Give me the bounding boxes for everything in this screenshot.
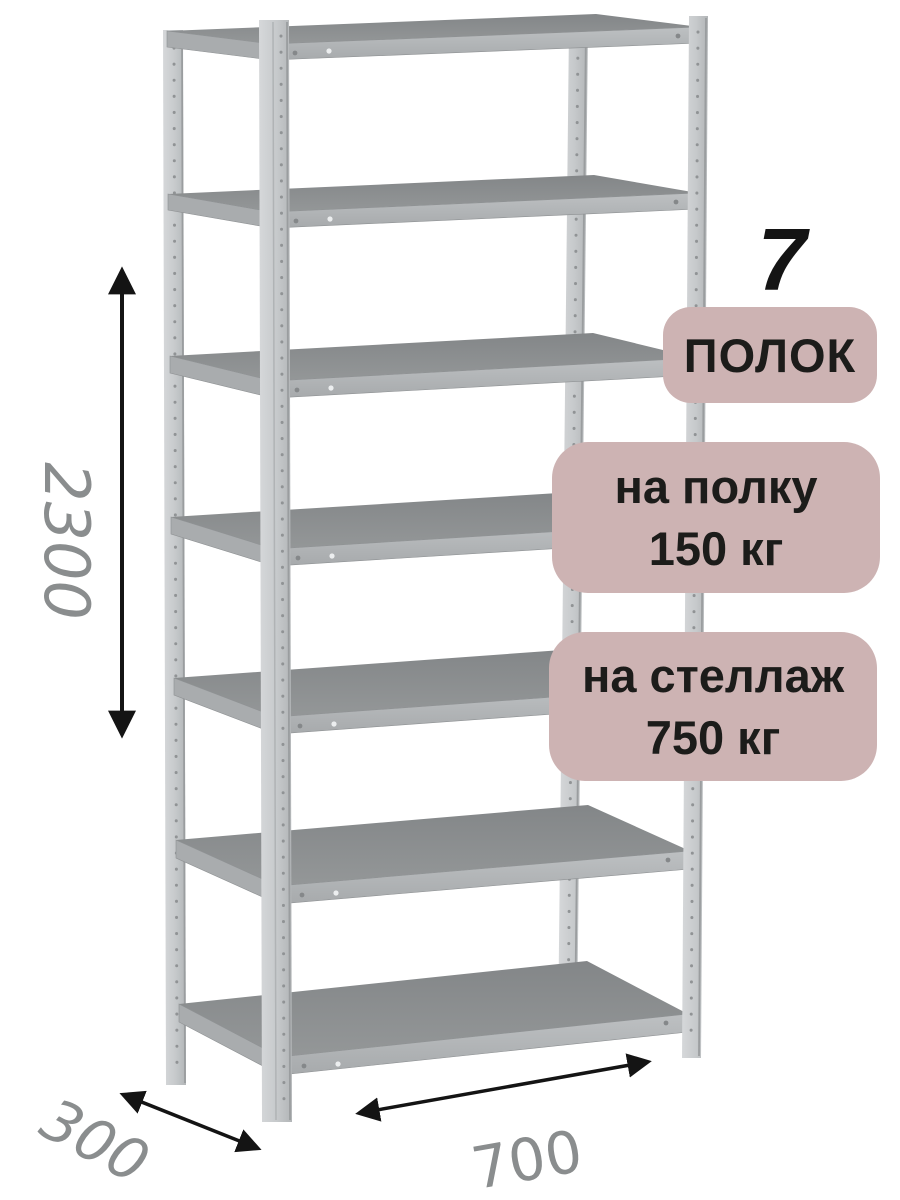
rack-shelf-6 (176, 805, 690, 904)
rack-shelf-7 (179, 961, 688, 1075)
product-image: 2300 300 700 7 ПОЛОК на полку 150 кг на … (0, 0, 900, 1200)
shelf-load-line2: 150 кг (649, 518, 784, 579)
shelf-count-badge: ПОЛОК (663, 307, 877, 403)
height-dimension-label: 2300 (35, 441, 97, 641)
rack-load-line1: на стеллаж (582, 645, 844, 706)
shelf-count-value: 7 (722, 210, 842, 310)
shelf-count-label: ПОЛОК (684, 328, 856, 383)
rack-shelf-1 (167, 14, 700, 60)
rack-shelf-2 (168, 175, 698, 228)
shelf-load-badge: на полку 150 кг (552, 442, 880, 593)
width-dimension-arrow (360, 1062, 647, 1113)
rack-post-front-left (259, 20, 292, 1122)
shelving-rack-illustration (0, 0, 900, 1200)
rack-shelf-3 (170, 333, 696, 398)
shelf-load-line1: на полку (614, 456, 817, 517)
rack-load-badge: на стеллаж 750 кг (549, 632, 877, 781)
rack-post-rear-left (163, 30, 186, 1085)
rack-load-line2: 750 кг (646, 707, 781, 768)
